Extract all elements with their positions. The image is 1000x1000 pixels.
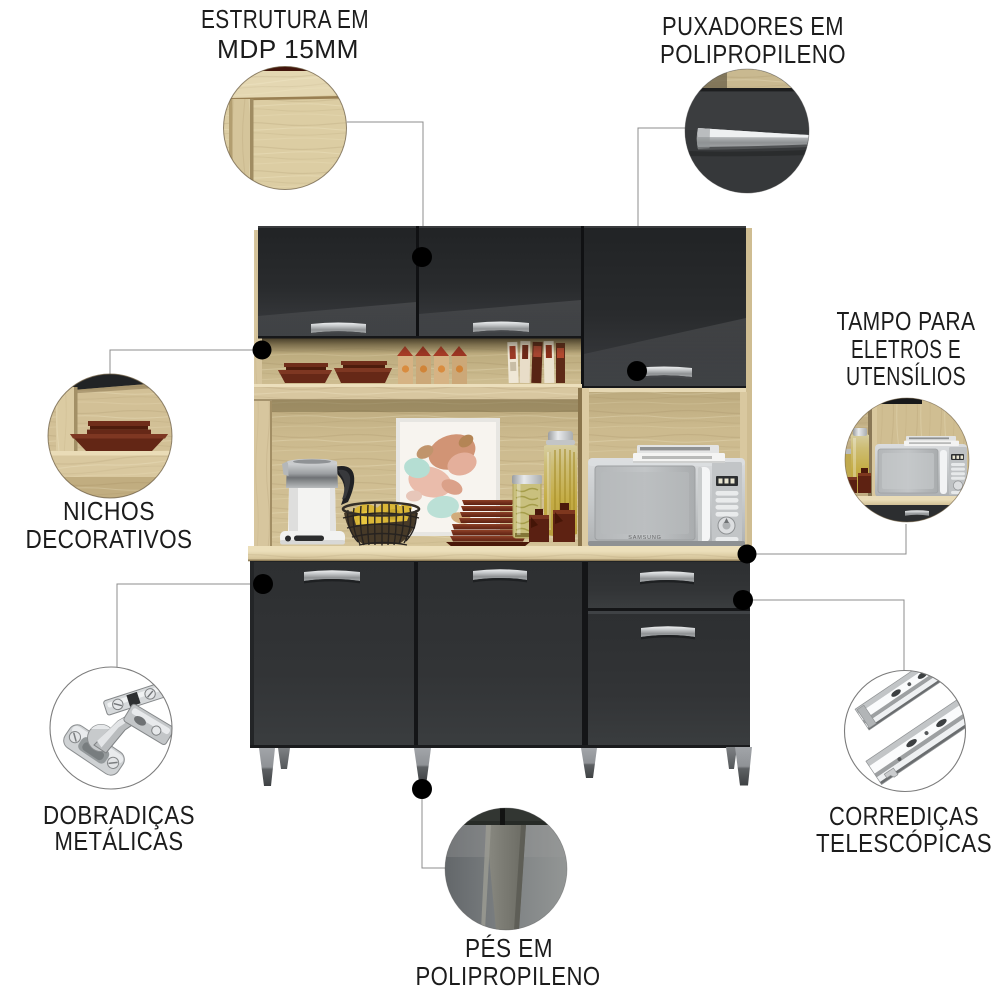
svg-text:CORREDIÇAS: CORREDIÇAS xyxy=(829,801,979,831)
svg-text:POLIPROPILENO: POLIPROPILENO xyxy=(660,39,846,69)
svg-text:NICHOS: NICHOS xyxy=(63,496,155,526)
svg-text:UTENSÍLIOS: UTENSÍLIOS xyxy=(846,361,966,391)
svg-text:PUXADORES EM: PUXADORES EM xyxy=(662,11,844,41)
svg-text:TAMPO PARA: TAMPO PARA xyxy=(837,306,976,336)
svg-text:METÁLICAS: METÁLICAS xyxy=(55,826,184,856)
svg-text:ELETROS E: ELETROS E xyxy=(851,334,961,364)
svg-text:SAMSUNG: SAMSUNG xyxy=(628,535,661,541)
svg-text:MDP 15MM: MDP 15MM xyxy=(217,34,359,64)
svg-text:TELESCÓPICAS: TELESCÓPICAS xyxy=(816,828,992,858)
svg-text:PÉS EM: PÉS EM xyxy=(465,933,553,963)
svg-text:ESTRUTURA EM: ESTRUTURA EM xyxy=(201,4,369,34)
svg-text:POLIPROPILENO: POLIPROPILENO xyxy=(416,961,601,991)
svg-text:DECORATIVOS: DECORATIVOS xyxy=(26,524,193,554)
